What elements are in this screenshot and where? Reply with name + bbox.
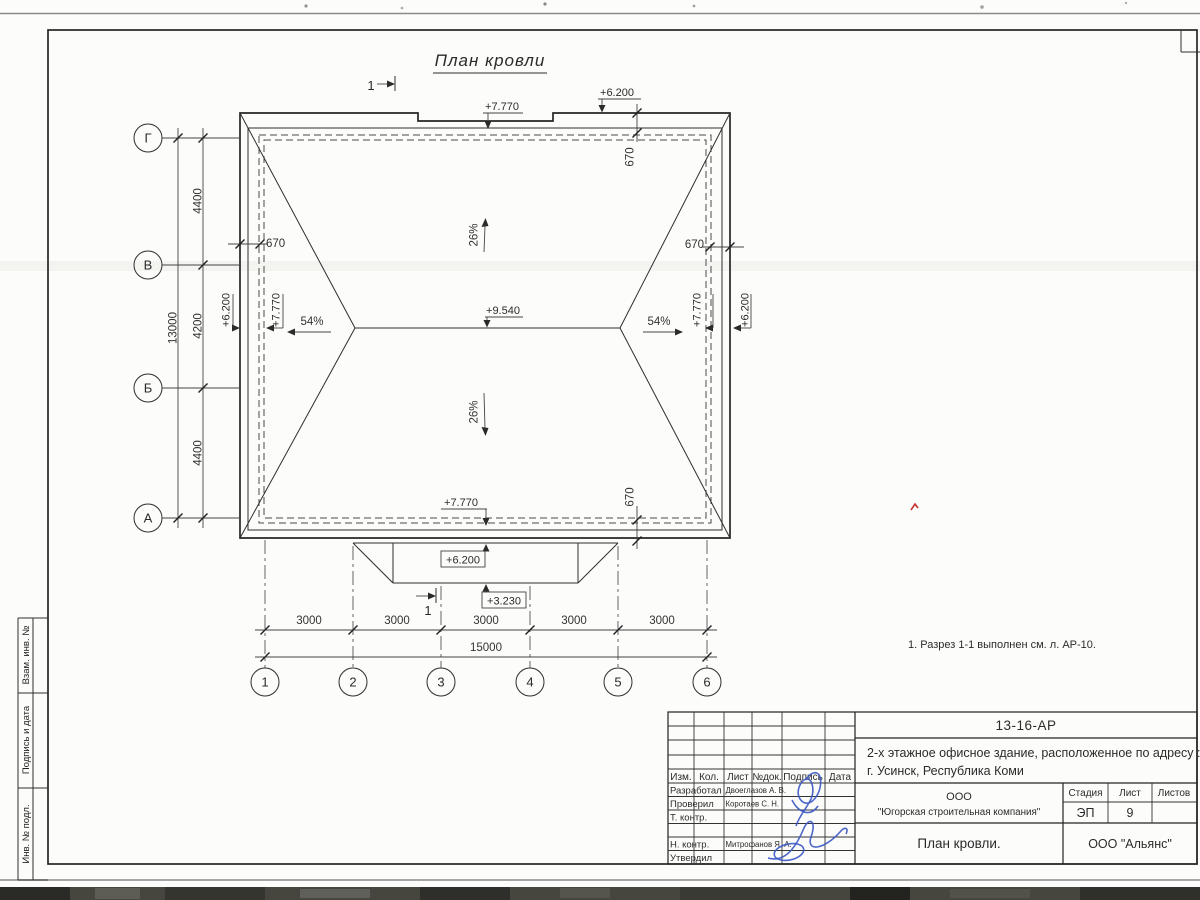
slope-hip-left: 54% — [300, 316, 323, 328]
tb-role-developer: Разработал — [670, 786, 722, 797]
wall-dashed-lines — [259, 135, 711, 523]
general-note: 1. Разрез 1-1 выполнен см. л. АР-10. — [908, 639, 1096, 651]
tb-sheet-name: План кровли. — [917, 836, 1000, 851]
tb-stage-value: ЭП — [1077, 806, 1095, 820]
elev-parapet-top: +6.200 — [600, 87, 634, 99]
section-mark-top-label: 1 — [367, 78, 374, 93]
slope-marks: 54% 54% 26% 26% — [287, 218, 683, 436]
tb-col-kol: Кол. — [699, 772, 719, 783]
tb-sheet-value: 9 — [1127, 806, 1134, 820]
elev-eaves-left: +7.770 — [270, 293, 282, 327]
dim-overhang-top-right: 670 — [624, 147, 636, 166]
dim-bottom-span-5: 3000 — [649, 615, 675, 627]
margin-strip: Взам. инв. № Подпись и дата Инв. № подл. — [18, 618, 48, 880]
tb-sheets-label: Листов — [1158, 788, 1191, 799]
scanned-drawing-page: Взам. инв. № Подпись и дата Инв. № подл.… — [0, 0, 1200, 900]
elev-ridge: +9.540 — [486, 305, 520, 317]
dim-left-total: 13000 — [167, 312, 179, 344]
tb-sheet-label: Лист — [1119, 788, 1141, 799]
drawing-title: План кровли — [433, 51, 547, 73]
dim-bottom-span-4: 3000 — [561, 615, 587, 627]
axis-col-label-1: 1 — [261, 675, 268, 690]
dim-bottom-total: 15000 — [470, 642, 502, 654]
elev-eaves-bottom: +7.770 — [444, 497, 478, 509]
elev-eaves-right: +7.770 — [691, 293, 703, 327]
tb-role-approved: Утвердил — [670, 853, 712, 864]
axis-col-label-2: 2 — [349, 675, 356, 690]
tb-org-line1: ООО — [946, 791, 972, 803]
bottom-scan-band — [0, 887, 1200, 900]
tb-name-checker: Коротаев С. Н. — [726, 800, 780, 809]
tb-role-checker: Проверил — [670, 799, 714, 810]
slope-main-top: 26% — [468, 223, 480, 246]
tb-name-ncontrol: Митрофанов Я. А. — [726, 840, 792, 849]
tb-project-line1: 2-х этажное офисное здание, расположенно… — [867, 746, 1200, 760]
tb-col-list: Лист — [727, 772, 749, 783]
roof-plan: Г В Б А 1 2 3 4 5 6 4400 4200 4400 13000… — [134, 76, 751, 696]
dim-overhang-bottom-right: 670 — [624, 487, 636, 506]
elev-parapet-right: +6.200 — [739, 293, 751, 327]
dim-bottom-span-1: 3000 — [296, 615, 322, 627]
tb-col-izm: Изм. — [670, 772, 691, 783]
red-check-mark — [911, 504, 918, 510]
axis-col-label-4: 4 — [526, 675, 533, 690]
section-marks: 1 1 — [367, 76, 436, 618]
slope-main-bottom: 26% — [468, 400, 480, 423]
tb-name-developer: Двоеглазов А. В. — [726, 786, 787, 795]
strip-label-podpis: Подпись и дата — [21, 705, 32, 774]
axis-col-label-6: 6 — [703, 675, 710, 690]
dim-overhang-right: 670 — [685, 239, 704, 251]
axis-row-label-v: В — [144, 258, 153, 273]
dim-overhang-left: 670 — [266, 238, 285, 250]
tb-stage-label: Стадия — [1068, 788, 1102, 799]
roof-plan-sheet: Взам. инв. № Подпись и дата Инв. № подл.… — [0, 0, 1200, 900]
axis-grid-lines — [162, 138, 707, 668]
tb-role-ncontrol: Н. контр. — [670, 840, 709, 851]
dim-left-span-3: 4400 — [192, 440, 204, 466]
dim-bottom-span-3: 3000 — [473, 615, 499, 627]
axis-col-label-3: 3 — [437, 675, 444, 690]
dim-left-span-1: 4400 — [192, 188, 204, 214]
tb-role-tcontrol: Т. контр. — [670, 813, 707, 824]
tb-col-ndok: №док. — [752, 772, 781, 783]
elev-parapet-canopy: +6.200 — [446, 555, 480, 567]
drawing-title-text: План кровли — [435, 51, 546, 70]
elev-porch: +3.230 — [487, 596, 521, 608]
axis-row-label-b: Б — [144, 381, 153, 396]
axis-row-label-g: Г — [144, 131, 151, 146]
dim-left-span-2: 4200 — [192, 313, 204, 339]
slope-hip-right: 54% — [647, 316, 670, 328]
tb-col-data: Дата — [829, 772, 852, 783]
axis-col-label-5: 5 — [614, 675, 621, 690]
tb-contractor: ООО "Альянс" — [1088, 837, 1172, 851]
tb-org-line2: "Югорская строительная компания" — [878, 807, 1041, 818]
strip-label-vzam: Взам. инв. № — [21, 626, 32, 685]
dim-bottom-span-2: 3000 — [384, 615, 410, 627]
elev-parapet-left: +6.200 — [220, 293, 232, 327]
tb-project-line2: г. Усинск, Республика Коми — [867, 764, 1024, 778]
elev-eaves-top: +7.770 — [485, 101, 519, 113]
strip-label-inv: Инв. № подл. — [21, 804, 32, 863]
tb-doc-number: 13-16-АР — [995, 718, 1056, 733]
title-block: Изм. Кол. Лист №док. Подпись Дата Разраб… — [668, 712, 1200, 864]
axis-row-label-a: А — [144, 511, 153, 526]
section-mark-bottom-label: 1 — [424, 603, 431, 618]
